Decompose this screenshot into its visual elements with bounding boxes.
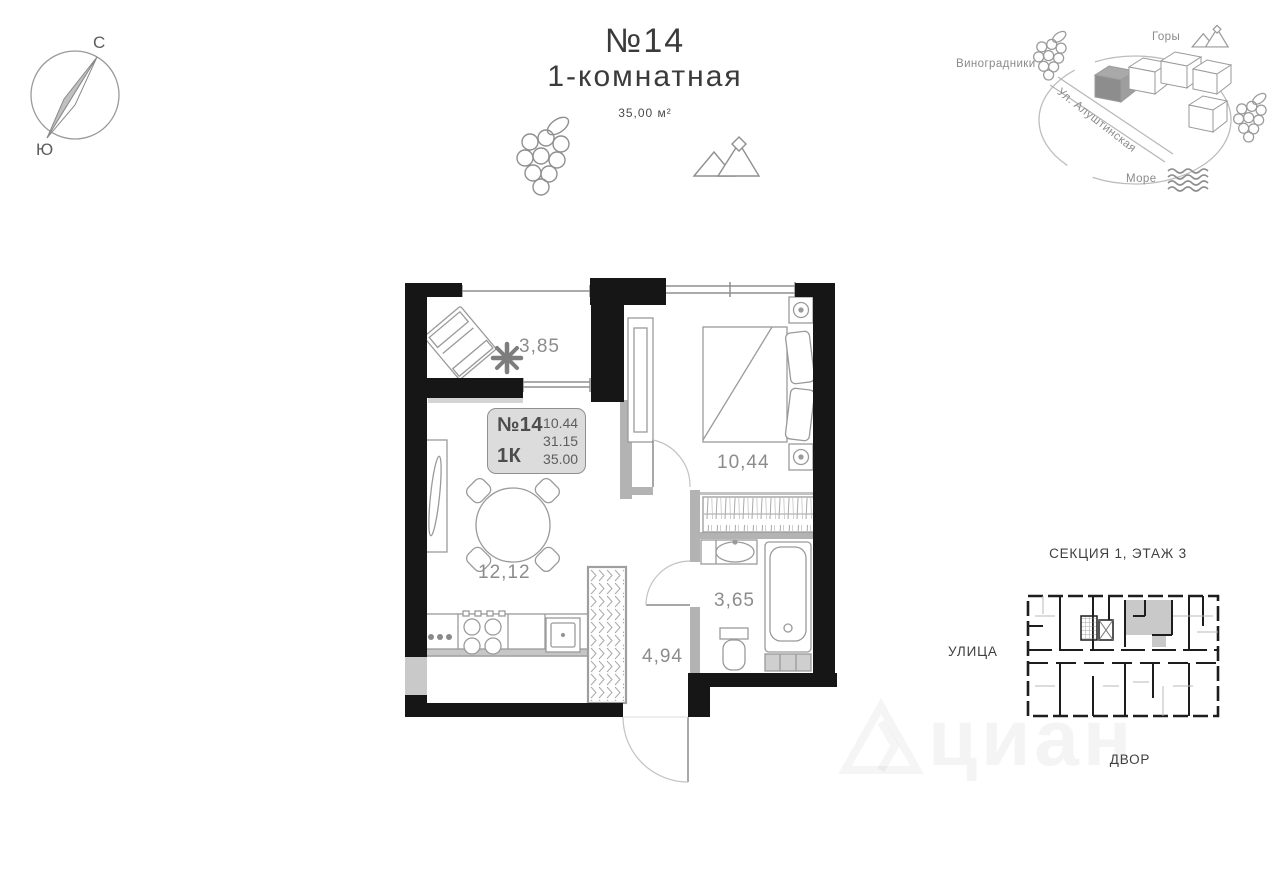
bedroom-area-label: 10,44 xyxy=(717,452,770,474)
apartment-info-box: №14 1К 10.44 31.15 35.00 xyxy=(487,408,586,474)
closet-hangers xyxy=(703,497,815,532)
apartment-floor-plan xyxy=(398,270,848,790)
plant-icon xyxy=(493,344,521,372)
dining-table xyxy=(464,476,562,574)
info-number: №14 xyxy=(497,414,543,437)
floorplan-page: С Ю №14 1-комнатная 35,00 м² xyxy=(0,0,1277,880)
window-sills xyxy=(428,398,523,403)
sea-label: Море xyxy=(1126,173,1157,185)
compass-north-label: С xyxy=(93,33,105,53)
building-block xyxy=(1193,60,1231,94)
toilet xyxy=(720,628,748,670)
grapes-icon-right xyxy=(1233,90,1273,144)
bathroom-sink xyxy=(701,540,757,564)
mountains-icon-small xyxy=(1190,24,1232,50)
stair-core xyxy=(1081,616,1113,640)
bedroom-door xyxy=(653,440,690,487)
watermark-logo-icon xyxy=(833,692,933,782)
mountains-icon xyxy=(690,136,766,180)
lounger xyxy=(424,306,497,380)
mountains-label: Горы xyxy=(1152,31,1180,43)
info-rooms: 1К xyxy=(497,445,543,468)
info-area-2: 31.15 xyxy=(543,432,578,450)
bathtub xyxy=(765,542,811,671)
vineyards-label: Виноградники xyxy=(956,58,1036,70)
compass-south-label: Ю xyxy=(36,140,53,160)
bed xyxy=(703,327,815,442)
kitchen-sink xyxy=(546,618,580,652)
key-plan-street-label: УЛИЦА xyxy=(948,644,998,659)
hall-area-label: 4,94 xyxy=(642,646,683,668)
bathroom-area-label: 3,65 xyxy=(714,590,755,612)
bedroom-wardrobe xyxy=(628,318,653,442)
entrance-door xyxy=(623,717,688,782)
switch-dots xyxy=(428,634,452,640)
info-area-1: 10.44 xyxy=(543,414,578,432)
building-block xyxy=(1189,96,1227,132)
apartment-type-title: 1-комнатная xyxy=(430,60,860,94)
locator-buildings xyxy=(1085,45,1240,155)
key-plan-title: СЕКЦИЯ 1, ЭТАЖ 3 xyxy=(1013,546,1223,561)
grapes-icon-small xyxy=(1033,28,1073,82)
hall-wardrobe xyxy=(588,567,626,703)
sea-waves-icon xyxy=(1166,166,1210,194)
living-area-label: 12,12 xyxy=(478,562,531,584)
info-area-3: 35.00 xyxy=(543,450,578,468)
key-plan-yard-label: ДВОР xyxy=(1085,752,1175,767)
balcony-area-label: 3,85 xyxy=(519,336,560,358)
bathroom-door xyxy=(646,561,690,605)
key-plan xyxy=(1013,586,1223,726)
apartment-number-title: №14 xyxy=(460,22,830,61)
nightstand-top xyxy=(789,297,813,323)
nightstand-bottom xyxy=(789,444,813,470)
grapes-icon xyxy=(516,114,580,196)
